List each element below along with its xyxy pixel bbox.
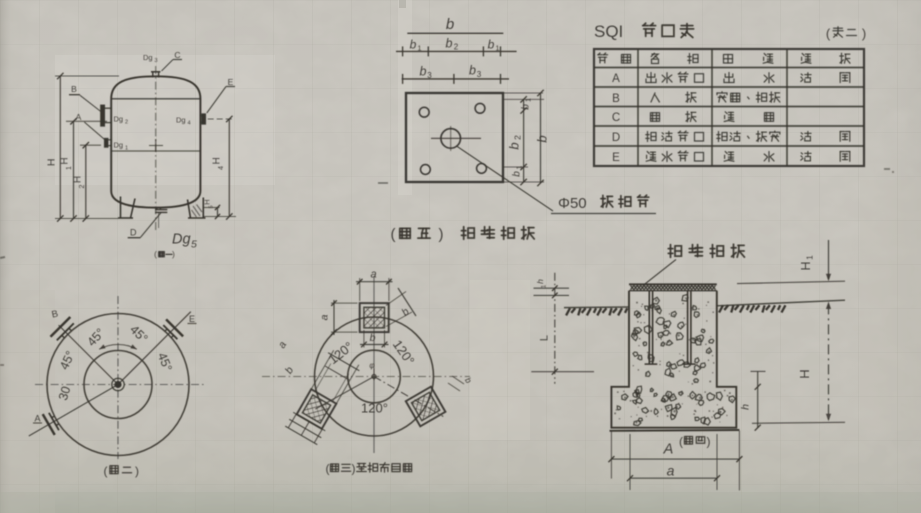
svg-text:h: h xyxy=(535,279,545,284)
svg-text:5: 5 xyxy=(209,205,215,208)
svg-text:A: A xyxy=(76,112,82,122)
svg-text:Dg: Dg xyxy=(172,232,191,248)
svg-text:A: A xyxy=(34,414,40,424)
svg-text:b: b xyxy=(521,104,532,110)
svg-text:Dg: Dg xyxy=(143,53,153,62)
svg-text:): ) xyxy=(135,464,139,478)
svg-text:): ) xyxy=(172,250,175,259)
svg-text:120°: 120° xyxy=(361,401,388,416)
svg-text:Φ50: Φ50 xyxy=(558,195,587,212)
svg-text:H: H xyxy=(203,199,212,204)
svg-text:b: b xyxy=(446,37,453,51)
svg-text:E: E xyxy=(612,152,620,164)
svg-text:b: b xyxy=(512,171,523,177)
svg-text:1: 1 xyxy=(805,255,815,260)
svg-text:1: 1 xyxy=(495,44,499,53)
svg-text:a: a xyxy=(370,269,376,281)
svg-text:(: ( xyxy=(326,462,330,476)
svg-text:(: ( xyxy=(826,26,831,41)
svg-text:B: B xyxy=(612,93,620,105)
svg-text:): ) xyxy=(439,226,444,243)
svg-text:4: 4 xyxy=(188,121,191,127)
svg-text:2: 2 xyxy=(513,135,523,140)
svg-text:b: b xyxy=(507,142,522,149)
svg-text:L: L xyxy=(539,335,551,341)
svg-text:(: ( xyxy=(104,464,108,478)
svg-text:4: 4 xyxy=(218,166,225,170)
svg-text:2: 2 xyxy=(454,43,459,52)
svg-text:b: b xyxy=(488,38,495,52)
svg-text:B: B xyxy=(71,84,77,94)
svg-text:1: 1 xyxy=(517,165,524,169)
svg-text:(: ( xyxy=(391,226,396,243)
svg-text:Dg: Dg xyxy=(114,115,124,124)
svg-text:D: D xyxy=(130,228,137,238)
svg-text:): ) xyxy=(707,435,711,449)
svg-text:b: b xyxy=(370,332,376,344)
svg-text:1: 1 xyxy=(125,146,128,152)
svg-text:E: E xyxy=(228,77,234,87)
svg-text:2: 2 xyxy=(125,120,128,126)
svg-text:1: 1 xyxy=(526,98,533,102)
svg-text:(: ( xyxy=(154,250,157,259)
svg-text:H: H xyxy=(60,157,71,164)
svg-text:b: b xyxy=(410,38,417,52)
svg-text:H: H xyxy=(797,369,812,378)
svg-text:): ) xyxy=(862,26,866,41)
svg-text:A: A xyxy=(612,73,620,85)
svg-text:H: H xyxy=(799,261,813,270)
svg-text:2: 2 xyxy=(79,184,86,188)
svg-text:A: A xyxy=(663,442,674,458)
svg-text:a: a xyxy=(319,314,331,320)
svg-text:C: C xyxy=(612,112,620,124)
svg-text:1: 1 xyxy=(66,166,73,170)
svg-text:H: H xyxy=(73,176,84,183)
svg-text:1: 1 xyxy=(417,44,421,53)
svg-text:a: a xyxy=(667,463,675,479)
svg-text:3: 3 xyxy=(155,58,158,64)
svg-text:C: C xyxy=(174,50,180,60)
svg-text:E: E xyxy=(189,314,195,324)
svg-text:H: H xyxy=(45,159,57,167)
svg-text:3: 3 xyxy=(427,71,432,80)
svg-text:SQI: SQI xyxy=(594,22,623,41)
svg-text:D: D xyxy=(612,132,620,144)
svg-text:b: b xyxy=(535,135,550,142)
svg-text:(: ( xyxy=(679,435,683,449)
svg-text:): ) xyxy=(352,462,356,476)
svg-text:b: b xyxy=(446,16,454,33)
svg-text:5: 5 xyxy=(191,239,197,251)
svg-text:b: b xyxy=(469,64,476,78)
svg-text:h: h xyxy=(740,404,752,410)
svg-text:H: H xyxy=(212,157,223,164)
svg-text:3: 3 xyxy=(477,70,482,79)
svg-text:Dg: Dg xyxy=(176,116,186,125)
svg-text:Dg: Dg xyxy=(114,141,124,150)
svg-text:b: b xyxy=(420,65,427,79)
